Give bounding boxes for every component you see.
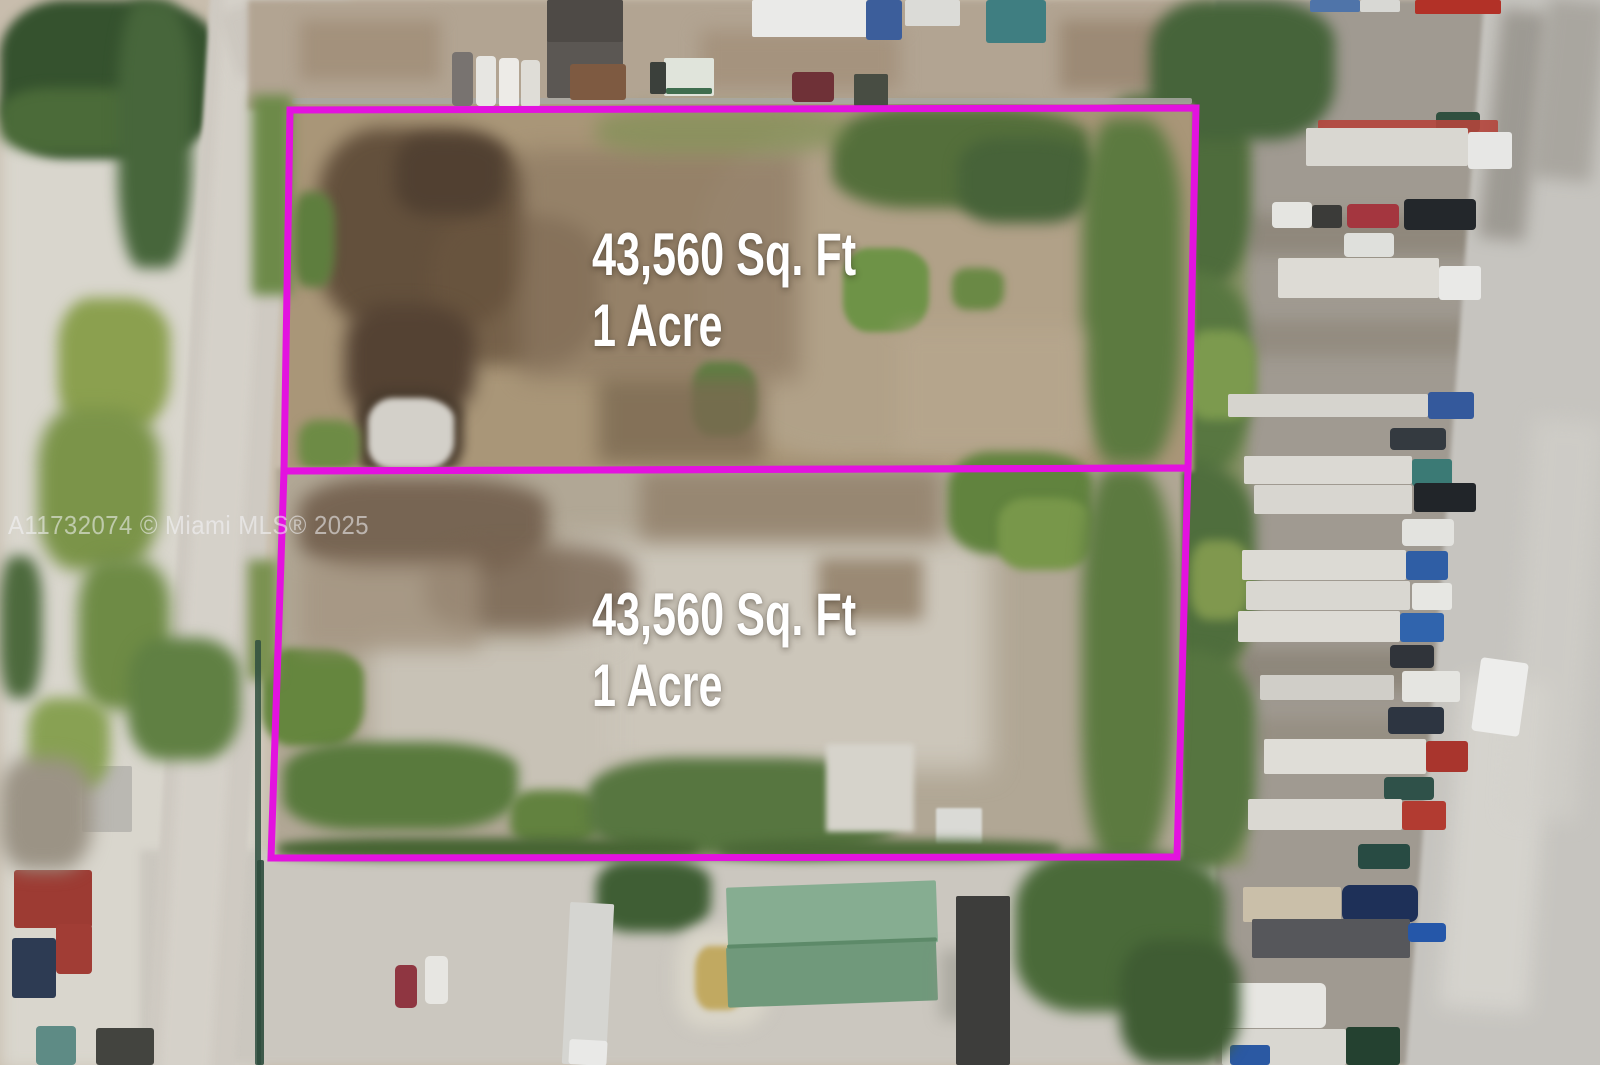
semi-trailer bbox=[1306, 128, 1468, 166]
semi-trailer bbox=[1278, 258, 1439, 298]
red-car bbox=[1347, 204, 1399, 228]
parcel-label-upper: 43,560 Sq. Ft 1 Acre bbox=[592, 220, 856, 362]
blue-truck-cab bbox=[866, 0, 902, 40]
tree-cluster bbox=[1120, 940, 1240, 1065]
truck-cab-red bbox=[1426, 741, 1468, 772]
white-trailer-roof bbox=[1360, 0, 1400, 12]
truck-cab-green bbox=[1346, 1027, 1400, 1065]
teal-car bbox=[36, 1026, 76, 1065]
truck-cab-red bbox=[1402, 801, 1446, 830]
teal-tarp bbox=[986, 0, 1046, 43]
top-yard-patch bbox=[300, 20, 440, 80]
excavation-swirl bbox=[395, 135, 505, 215]
dark-suv bbox=[1388, 707, 1444, 734]
truck-cab-blue bbox=[1400, 613, 1444, 642]
fence-line-top bbox=[292, 98, 1192, 104]
parked-car bbox=[521, 60, 540, 108]
tree-cluster bbox=[958, 138, 1093, 223]
bush bbox=[952, 268, 1004, 310]
semi-trailer bbox=[1246, 581, 1410, 610]
semi-trailer bbox=[1242, 550, 1406, 580]
parked-car bbox=[452, 52, 473, 106]
dark-pickup bbox=[1390, 428, 1446, 450]
bush bbox=[510, 790, 600, 845]
aerial-photo: 43,560 Sq. Ft 1 Acre 43,560 Sq. Ft 1 Acr… bbox=[0, 0, 1600, 1065]
soil-dark-patch bbox=[598, 378, 763, 463]
dark-car bbox=[1390, 645, 1434, 668]
red-suv bbox=[792, 72, 834, 102]
truck-cab-white bbox=[1412, 583, 1452, 610]
green-roof-south bbox=[726, 940, 938, 1007]
gravel-pit bbox=[368, 398, 454, 470]
dark-building-roof bbox=[547, 0, 623, 42]
blue-car bbox=[1408, 923, 1446, 942]
roadside-bush bbox=[248, 560, 278, 680]
teal-car bbox=[1384, 777, 1434, 800]
parcel-area-lower: 43,560 Sq. Ft bbox=[592, 580, 856, 651]
parked-car bbox=[499, 58, 519, 108]
junk-pile bbox=[0, 758, 92, 870]
parcel-edge-green bbox=[1082, 118, 1182, 463]
bush bbox=[298, 420, 360, 472]
semi-trailer bbox=[1264, 739, 1426, 774]
semi-trailer bbox=[1244, 456, 1412, 484]
parcel-area-upper: 43,560 Sq. Ft bbox=[592, 220, 856, 291]
grass-speckle bbox=[596, 108, 846, 154]
roadside-bush bbox=[252, 95, 292, 295]
bush bbox=[293, 192, 335, 287]
parcel-label-lower: 43,560 Sq. Ft 1 Acre bbox=[592, 580, 856, 722]
truck-cab-white bbox=[1439, 266, 1481, 300]
container bbox=[854, 74, 888, 106]
lot-dirt-row bbox=[1250, 320, 1470, 356]
red-car bbox=[56, 924, 92, 974]
soil-light-patch bbox=[898, 328, 1083, 453]
semi-trailer bbox=[1254, 485, 1412, 514]
blue-trailer-roof bbox=[1310, 0, 1360, 12]
bush-row bbox=[283, 742, 518, 830]
truck-cab-white bbox=[568, 1039, 607, 1065]
teal-car bbox=[1358, 844, 1410, 869]
palm-accent bbox=[1190, 540, 1250, 620]
semi-trailer bbox=[1238, 611, 1400, 642]
red-trailer bbox=[14, 870, 92, 928]
white-truck bbox=[905, 0, 960, 26]
truck-cab-blue bbox=[1406, 551, 1448, 580]
boundary-hedge bbox=[278, 838, 698, 860]
parcel-acre-upper: 1 Acre bbox=[592, 291, 856, 362]
white-car bbox=[1402, 519, 1454, 546]
trailer-roof bbox=[752, 0, 868, 37]
black-pickup bbox=[1404, 199, 1476, 230]
parcel-acre-lower: 1 Acre bbox=[592, 651, 856, 722]
soil-wash bbox=[640, 470, 940, 540]
white-car bbox=[425, 956, 448, 1004]
parked-car bbox=[476, 56, 496, 106]
boundary-hedge bbox=[720, 840, 1060, 860]
parked-car bbox=[1272, 202, 1312, 228]
concrete-pad bbox=[826, 744, 914, 832]
palm-cluster bbox=[998, 498, 1093, 570]
semi-tractor-on-road bbox=[1471, 657, 1529, 737]
truck-cab-teal bbox=[1412, 459, 1452, 486]
white-suv bbox=[1344, 233, 1394, 257]
mls-watermark: A11732074 © Miami MLS® 2025 bbox=[8, 510, 369, 541]
fence-line-left bbox=[257, 860, 264, 1065]
parked-car bbox=[1312, 205, 1342, 228]
flatbed-trailer bbox=[1260, 675, 1394, 700]
dark-trailer bbox=[1252, 919, 1410, 958]
red-trailer-roof bbox=[1415, 0, 1501, 14]
truck-cab-black bbox=[1414, 483, 1476, 512]
white-shed bbox=[936, 808, 982, 844]
hedge-vertical bbox=[118, 0, 192, 268]
rusty-truck bbox=[570, 64, 626, 100]
dark-box-truck bbox=[96, 1028, 154, 1065]
semi-trailer bbox=[1248, 799, 1402, 830]
box-truck-stripe bbox=[666, 88, 712, 94]
box-truck-cab bbox=[650, 62, 666, 94]
red-car bbox=[395, 965, 417, 1008]
palm-cluster bbox=[128, 638, 240, 760]
tan-container bbox=[1243, 887, 1341, 922]
truck-cab-blue bbox=[1230, 1045, 1270, 1065]
parcel-edge-green bbox=[1082, 468, 1174, 860]
dark-blue-truck bbox=[12, 938, 56, 998]
navy-boat bbox=[1342, 885, 1418, 922]
semi-trailer bbox=[1228, 394, 1428, 417]
dark-shrubs bbox=[0, 556, 42, 698]
soil-speckle bbox=[300, 560, 480, 650]
truck-cab-white bbox=[1402, 671, 1460, 702]
palm-cluster bbox=[38, 408, 160, 570]
charcoal-shed bbox=[956, 896, 1010, 1065]
truck-cab-blue bbox=[1428, 392, 1474, 419]
truck-cab-white bbox=[1468, 132, 1512, 169]
